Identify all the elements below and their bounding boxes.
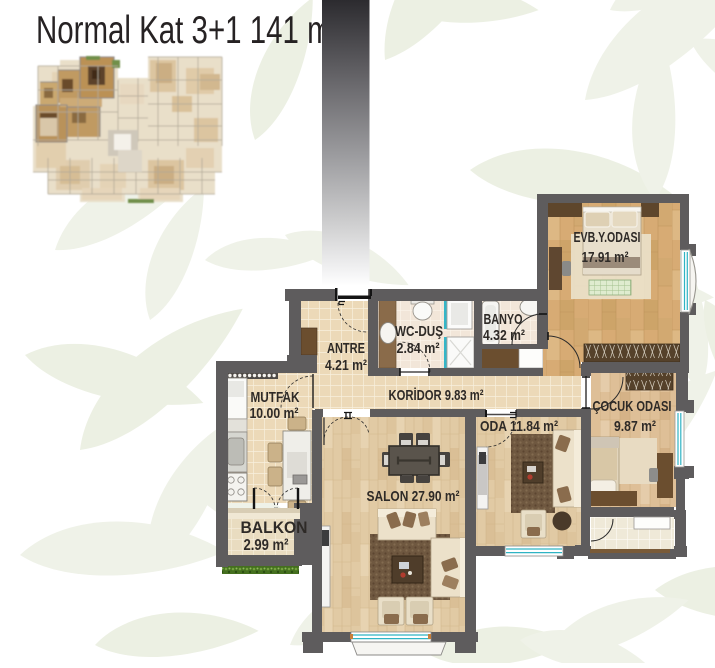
svg-text:BALKON: BALKON — [241, 518, 308, 537]
svg-text:EVB.Y.ODASI: EVB.Y.ODASI — [574, 229, 641, 246]
svg-text:9.87 m²: 9.87 m² — [614, 418, 656, 435]
svg-text:ANTRE: ANTRE — [327, 340, 365, 357]
svg-text:4.32 m²: 4.32 m² — [483, 327, 525, 344]
svg-text:17.91 m²: 17.91 m² — [582, 249, 629, 266]
svg-text:WC-DUŞ: WC-DUŞ — [395, 323, 443, 340]
svg-text:2.99 m²: 2.99 m² — [244, 537, 289, 554]
svg-text:Normal Kat 3+1 141 m2: Normal Kat 3+1 141 m2 — [36, 9, 348, 52]
svg-text:10.00 m²: 10.00 m² — [250, 405, 299, 422]
svg-text:ODA 11.84 m²: ODA 11.84 m² — [480, 418, 558, 435]
svg-text:BANYO: BANYO — [484, 311, 523, 328]
svg-text:ÇOCUK ODASI: ÇOCUK ODASI — [593, 398, 672, 415]
svg-text:MUTFAK: MUTFAK — [251, 389, 300, 406]
svg-text:SALON 27.90 m²: SALON 27.90 m² — [367, 488, 460, 505]
svg-text:KORİDOR 9.83 m²: KORİDOR 9.83 m² — [389, 387, 484, 404]
svg-text:4.21 m²: 4.21 m² — [325, 357, 367, 374]
svg-text:2.84 m²: 2.84 m² — [397, 340, 440, 357]
